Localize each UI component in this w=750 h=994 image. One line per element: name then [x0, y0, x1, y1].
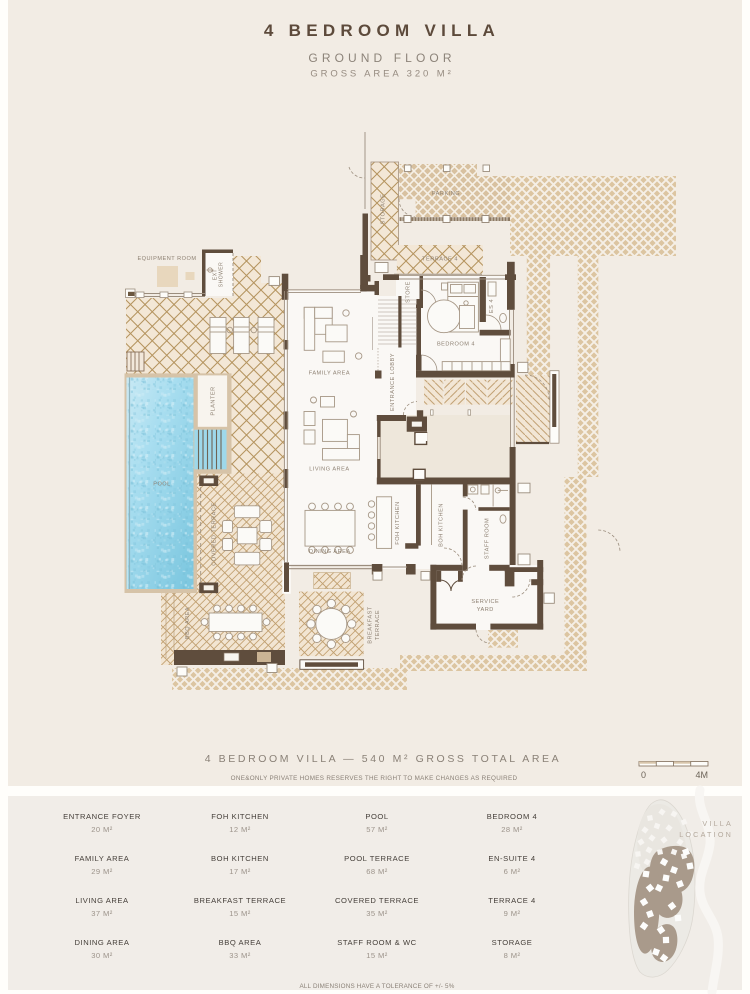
svg-text:12 M²: 12 M²	[229, 825, 250, 834]
svg-text:PLANTER: PLANTER	[211, 386, 217, 415]
svg-text:COVERED TERRACE: COVERED TERRACE	[335, 896, 419, 905]
svg-text:SHOWER: SHOWER	[219, 262, 225, 288]
svg-text:4M: 4M	[695, 770, 708, 780]
svg-text:COVERED TERRACE: COVERED TERRACE	[212, 502, 218, 565]
svg-text:SERVICE: SERVICE	[471, 599, 499, 605]
svg-text:STORE: STORE	[406, 281, 412, 303]
svg-text:POOL: POOL	[365, 812, 388, 821]
svg-text:8 M²: 8 M²	[504, 951, 521, 960]
svg-text:15 M²: 15 M²	[229, 909, 250, 918]
svg-text:DINING AREA: DINING AREA	[75, 938, 130, 947]
svg-text:6 M²: 6 M²	[504, 867, 521, 876]
svg-text:BREAKFAST: BREAKFAST	[368, 606, 374, 644]
svg-text:FAMILY AREA: FAMILY AREA	[75, 854, 130, 863]
svg-text:EQUIPMENT ROOM: EQUIPMENT ROOM	[137, 256, 196, 262]
svg-text:ALL DIMENSIONS HAVE A TOLERANC: ALL DIMENSIONS HAVE A TOLERANCE OF +/- 5…	[299, 983, 454, 990]
svg-text:ONE&ONLY PRIVATE HOMES RESERVE: ONE&ONLY PRIVATE HOMES RESERVES THE RIGH…	[231, 775, 518, 782]
svg-text:17 M²: 17 M²	[229, 867, 250, 876]
svg-text:57 M²: 57 M²	[366, 825, 387, 834]
svg-text:FOH KITCHEN: FOH KITCHEN	[211, 812, 269, 821]
svg-text:EN-SUITE 4: EN-SUITE 4	[488, 854, 535, 863]
svg-text:FAMILY AREA: FAMILY AREA	[309, 371, 350, 377]
svg-text:20 M²: 20 M²	[91, 825, 112, 834]
svg-text:BBQ AREA: BBQ AREA	[219, 938, 262, 947]
svg-text:30 M²: 30 M²	[91, 951, 112, 960]
svg-text:4 BEDROOM VILLA: 4 BEDROOM VILLA	[264, 21, 500, 40]
svg-text:POOL TERRACE: POOL TERRACE	[344, 854, 410, 863]
svg-text:TERRACE: TERRACE	[375, 610, 381, 640]
svg-text:BEDROOM 4: BEDROOM 4	[437, 342, 475, 348]
svg-text:LIVING AREA: LIVING AREA	[309, 467, 349, 473]
svg-text:BEDROOM 4: BEDROOM 4	[487, 812, 538, 821]
svg-text:28 M²: 28 M²	[501, 825, 522, 834]
svg-text:PARKING: PARKING	[432, 191, 460, 197]
svg-text:TERRACE 4: TERRACE 4	[422, 257, 458, 263]
svg-text:LOCATION: LOCATION	[679, 830, 733, 839]
svg-text:ENTRANCE FOYER: ENTRANCE FOYER	[63, 812, 141, 821]
svg-text:BOH KITCHEN: BOH KITCHEN	[211, 854, 269, 863]
svg-text:DINING AREA: DINING AREA	[309, 549, 351, 555]
svg-text:68 M²: 68 M²	[366, 867, 387, 876]
svg-text:4 BEDROOM VILLA — 540 M² GROSS: 4 BEDROOM VILLA — 540 M² GROSS TOTAL ARE…	[205, 753, 562, 765]
svg-text:POOL: POOL	[153, 482, 171, 488]
svg-text:29 M²: 29 M²	[91, 867, 112, 876]
svg-text:STAFF ROOM: STAFF ROOM	[484, 518, 490, 559]
svg-text:ENTRANCE LOBBY: ENTRANCE LOBBY	[390, 353, 396, 411]
svg-text:9 M²: 9 M²	[504, 909, 521, 918]
svg-text:BBQ AREA: BBQ AREA	[185, 607, 191, 639]
svg-text:LIVING AREA: LIVING AREA	[75, 896, 129, 905]
svg-text:TERRACE 4: TERRACE 4	[488, 896, 536, 905]
svg-text:BREAKFAST TERRACE: BREAKFAST TERRACE	[194, 896, 286, 905]
svg-text:STAFF ROOM & WC: STAFF ROOM & WC	[337, 938, 416, 947]
svg-text:BOH KITCHEN: BOH KITCHEN	[439, 503, 445, 547]
svg-text:VILLA: VILLA	[702, 819, 733, 828]
svg-text:FOH KITCHEN: FOH KITCHEN	[395, 501, 401, 544]
svg-text:37 M²: 37 M²	[91, 909, 112, 918]
svg-text:15 M²: 15 M²	[366, 951, 387, 960]
svg-text:STORAGE: STORAGE	[492, 938, 533, 947]
svg-text:YARD: YARD	[477, 607, 494, 613]
svg-text:STORAGE: STORAGE	[381, 194, 387, 225]
svg-text:33 M²: 33 M²	[229, 951, 250, 960]
svg-text:GROSS AREA 320 M²: GROSS AREA 320 M²	[310, 69, 453, 80]
svg-text:35 M²: 35 M²	[366, 909, 387, 918]
svg-text:0: 0	[641, 770, 646, 780]
svg-text:GROUND FLOOR: GROUND FLOOR	[308, 51, 455, 65]
svg-text:ES 4: ES 4	[489, 299, 495, 313]
